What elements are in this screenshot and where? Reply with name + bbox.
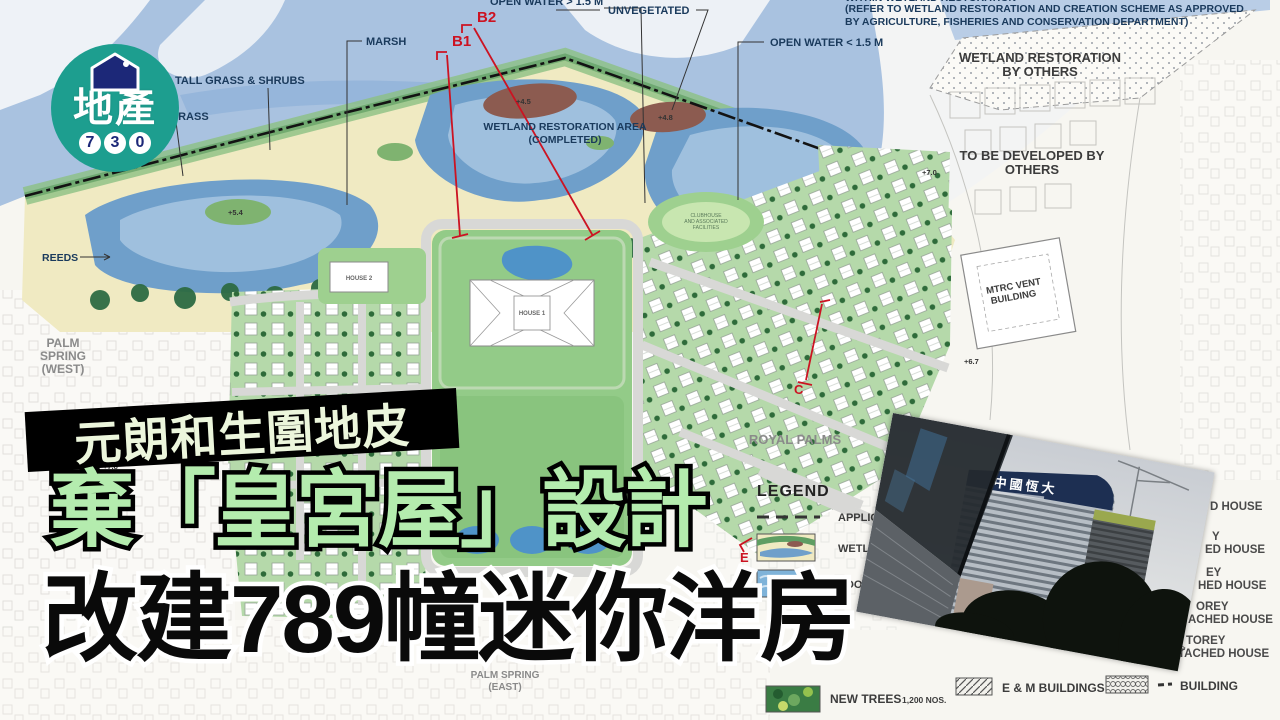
logo-digit-7: 7: [79, 132, 101, 154]
legend-em: E & M BUILDINGS: [1002, 681, 1105, 695]
label-psw-3: (WEST): [42, 362, 85, 376]
headline-line2: 棄「皇宮屋」設計: [50, 466, 706, 554]
house-icon: [88, 52, 142, 92]
label-psw-2: SPRING: [40, 349, 86, 363]
property730-logo: 地產 7 3 0: [51, 44, 179, 172]
legend-wetland-swatch: [757, 534, 815, 561]
legend-building: BUILDING: [1180, 679, 1238, 693]
label-house2: HOUSE 2: [346, 276, 373, 282]
label-wbo-1: WETLAND RESTORATION: [959, 50, 1121, 65]
house-type-0: D HOUSE: [1210, 501, 1263, 513]
logo-digit-0: 0: [129, 132, 151, 154]
label-reeds: REEDS: [42, 252, 78, 264]
label-unvegetated: UNVEGETATED: [608, 5, 690, 17]
label-house1: HOUSE 1: [519, 311, 546, 317]
label-wetland-area-1: WETLAND RESTORATION AREA: [483, 121, 647, 133]
elev-70: +7.0: [922, 168, 937, 177]
label-open-water-lt: OPEN WATER < 1.5 M: [770, 37, 883, 49]
section-c: C: [794, 382, 804, 397]
label-marsh: MARSH: [366, 36, 406, 48]
house-type-3a: OREY: [1196, 601, 1229, 613]
label-royal-palms: ROYAL PALMS: [749, 432, 842, 447]
news-graphic: B1 B2 C D E MARSH TALL GRASS & SHRUBS SH…: [0, 0, 1280, 720]
house-type-1a: Y: [1212, 531, 1220, 543]
label-tbd-2: OTHERS: [1005, 162, 1060, 177]
logo-digit-3: 3: [104, 132, 126, 154]
legend-new-trees-qty: 1,200 NOS.: [902, 695, 946, 705]
label-tbd-1: TO BE DEVELOPED BY: [960, 148, 1105, 163]
label-pse-2: (EAST): [488, 682, 521, 693]
label-note-2: BY AGRICULTURE, FISHERIES AND CONSERVATI…: [845, 16, 1188, 28]
house-type-4a: TOREY: [1186, 635, 1226, 647]
label-clubhouse-3: FACILITIES: [693, 225, 720, 231]
section-e: E: [740, 550, 749, 565]
elev-67: +6.7: [964, 357, 979, 366]
headline-line3: 改建789幢迷你洋房: [42, 570, 854, 671]
elev-48: +4.8: [658, 113, 673, 122]
legend-new-trees: NEW TREES: [830, 692, 901, 706]
section-b2: B2: [477, 9, 496, 26]
house-type-1b: ED HOUSE: [1205, 544, 1265, 556]
label-open-water-gt: OPEN WATER > 1.5 M: [490, 0, 603, 8]
label-wbo-2: BY OTHERS: [1002, 64, 1078, 79]
estate-top: [818, 145, 950, 230]
logo-brand-text: 地產: [51, 88, 179, 128]
house-type-2b: HED HOUSE: [1198, 580, 1267, 592]
elev-45: +4.5: [516, 97, 531, 106]
house-type-4b: TACHED HOUSE: [1178, 648, 1269, 660]
label-tall-grass: TALL GRASS & SHRUBS: [175, 75, 305, 87]
label-psw-1: PALM: [46, 336, 79, 350]
legend-building-swatch: [1106, 676, 1148, 693]
section-b1: B1: [452, 33, 471, 50]
legend-em-swatch: [956, 678, 992, 695]
label-wetland-area-2: (COMPLETED): [529, 134, 602, 146]
legend-title: LEGEND: [757, 483, 830, 500]
label-note-1: (REFER TO WETLAND RESTORATION AND CREATI…: [845, 3, 1244, 15]
legend-new-trees-swatch: [766, 686, 820, 712]
logo-digits: 7 3 0: [51, 132, 179, 154]
house-type-2a: EY: [1206, 567, 1222, 579]
elev-54: +5.4: [228, 208, 244, 217]
house-type-3b: ACHED HOUSE: [1188, 614, 1273, 626]
